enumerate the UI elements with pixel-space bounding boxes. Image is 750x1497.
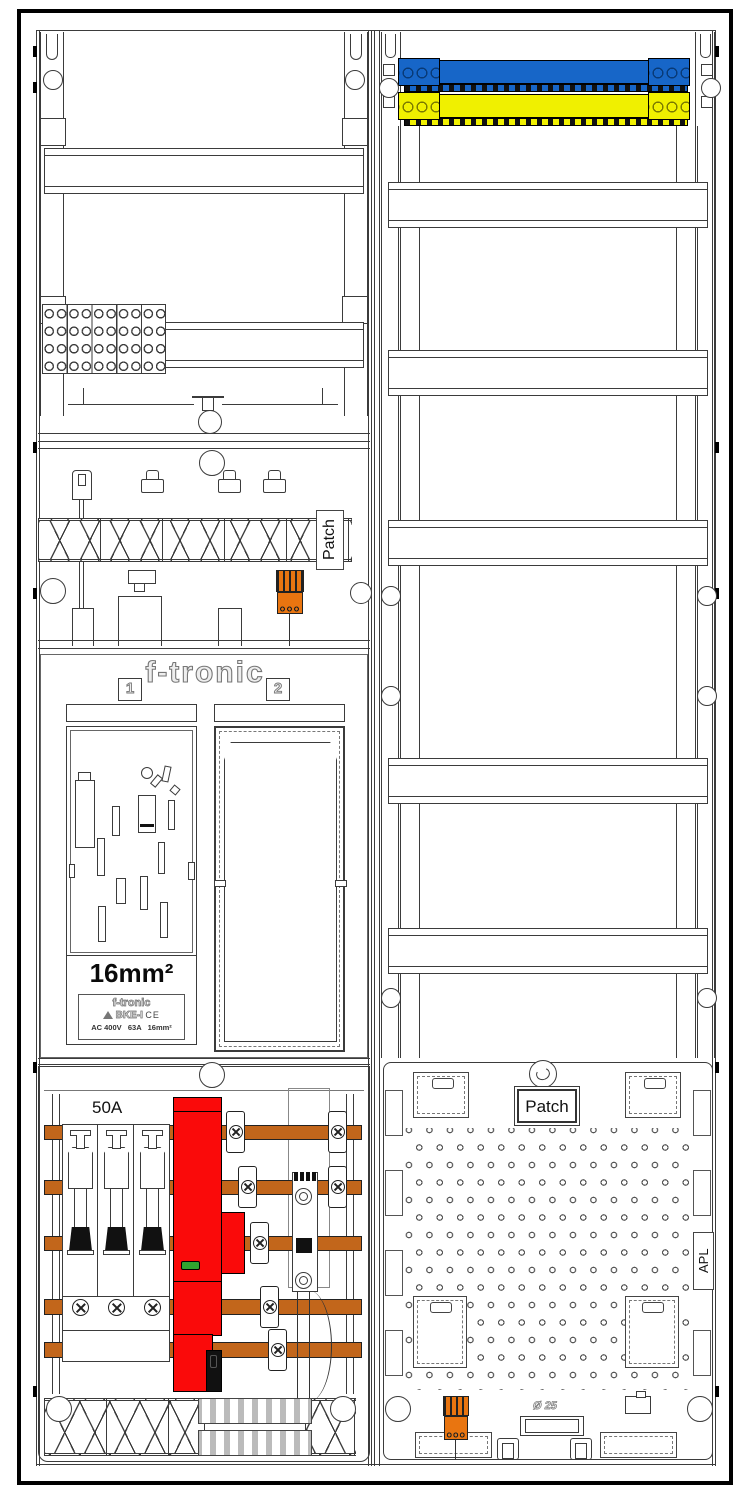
mm-bottom-line2 <box>38 648 370 649</box>
terminal-strip-row2 <box>198 1430 312 1456</box>
mounting-ring <box>701 78 721 98</box>
panel-hinge-left <box>385 1170 403 1216</box>
panel-connector-head <box>443 1396 469 1416</box>
bke-left-clip <box>78 772 91 781</box>
tl-step-l <box>68 388 84 405</box>
din-rail-right-4 <box>388 758 708 804</box>
mm-module-box <box>118 596 162 646</box>
r-vstrip-left <box>398 804 420 928</box>
pe-bus-end-left <box>398 92 440 120</box>
wall-tab-right <box>715 1062 719 1073</box>
wall-tab-right <box>715 442 719 453</box>
panel-hinge-right <box>693 1330 711 1376</box>
din-rail-right-2 <box>388 350 708 396</box>
fuse-stem <box>74 1188 87 1228</box>
din-rail-left-2 <box>160 322 364 368</box>
mounting-ring <box>381 586 401 606</box>
screwdriver-icon <box>141 767 153 779</box>
pe-bus-comb <box>404 118 688 126</box>
panel-u-bracket <box>497 1438 519 1460</box>
r-vstrip-left <box>398 126 420 182</box>
patch-label-left: Patch <box>317 511 343 569</box>
sls-green-indicator <box>181 1261 200 1270</box>
sls-rating-text: 50A <box>92 1098 138 1118</box>
mm-flag-box <box>128 570 156 584</box>
sls-slot-handle <box>210 1355 217 1368</box>
ce-mark: CE <box>145 1010 160 1020</box>
fuse-grip-base <box>139 1250 166 1255</box>
bottom-edge <box>36 1464 716 1465</box>
mounting-ring <box>46 1396 72 1422</box>
fuse-grip-base <box>67 1250 94 1255</box>
r-vstrip-right <box>676 396 698 520</box>
pe-busbar-yellow <box>398 94 690 118</box>
bke-slot <box>98 906 106 942</box>
field2-number-box: 2 <box>266 678 290 701</box>
patch-label-right-box: Patch <box>514 1086 580 1126</box>
r-clamp <box>701 64 713 76</box>
neutral-busbar-blue <box>398 60 690 84</box>
mm-connector-head <box>276 570 304 592</box>
din-rail-left-1 <box>44 148 364 194</box>
neutral-bus-end-left <box>398 58 440 86</box>
bke-slot <box>112 806 120 836</box>
clamp-screw-icon <box>263 1300 277 1314</box>
sls-switch-body <box>173 1111 222 1283</box>
wall-tab-right <box>715 1386 719 1397</box>
tl-hanger-stem <box>202 397 214 411</box>
fuse-grip-handle <box>105 1227 128 1251</box>
bke-slot <box>116 878 126 904</box>
tl-left-foot <box>40 118 66 146</box>
field1-number-box: 1 <box>118 678 142 701</box>
mounting-ring <box>379 78 399 98</box>
fuse-head-neck <box>76 1135 85 1149</box>
mm-connector-wire <box>289 614 290 646</box>
meter-field2-frame <box>214 726 345 1052</box>
neutral-bus-comb <box>404 84 688 92</box>
field2-tab-left <box>214 880 226 887</box>
mounting-ring <box>350 582 372 604</box>
cross-section-text: 16mm² <box>70 958 193 989</box>
breaker-top-cap <box>294 1172 316 1181</box>
clamp-screw-icon <box>229 1125 243 1139</box>
bke-slot-band <box>140 824 154 827</box>
tl-step-line-l <box>84 404 194 405</box>
field2-number: 2 <box>274 680 282 697</box>
mounting-ring <box>385 1396 411 1422</box>
bke-slot <box>138 795 156 833</box>
clamp-screw-icon <box>331 1125 345 1139</box>
wall-tab-left <box>33 46 37 57</box>
fuse-grip-base <box>103 1250 130 1255</box>
terminal-strip-row1 <box>198 1398 312 1424</box>
tl-right-foot <box>342 118 368 146</box>
fuse-hline-1 <box>63 1296 169 1297</box>
mm-flag-stub <box>134 583 145 592</box>
mounting-ring <box>381 686 401 706</box>
mounting-ring <box>199 1062 225 1088</box>
field2-header-bar <box>214 704 345 722</box>
tl-bottom-line1 <box>38 433 370 434</box>
r-vstrip-right <box>676 228 698 350</box>
cable-duct-mm <box>38 518 352 562</box>
panel-cutout-top-right <box>625 1072 681 1118</box>
bke-slot <box>168 800 175 830</box>
apl-label: APL <box>694 1233 713 1289</box>
r-vstrip-left <box>398 396 420 520</box>
r-clamp <box>383 64 395 76</box>
mounting-ring <box>199 450 225 476</box>
wall-tab-right <box>715 46 719 57</box>
clamp-screw-icon <box>253 1236 267 1250</box>
panel-cutout-top-left <box>413 1072 469 1118</box>
tl-right-slot <box>350 34 362 60</box>
mm-bottom-line1 <box>38 640 370 641</box>
clamp-screw-icon <box>271 1343 285 1357</box>
bke-label-brand: f-tronic <box>79 997 184 1009</box>
panel-bottom-frame-right <box>600 1432 677 1458</box>
fuse-stem <box>110 1188 123 1228</box>
r-left-slot <box>385 34 396 58</box>
fuse-screw-icon <box>144 1299 161 1316</box>
phone-jack-pin <box>78 474 86 486</box>
fuse-body <box>140 1147 165 1189</box>
terminal-circle-block <box>42 304 166 374</box>
top-edge <box>36 30 716 31</box>
conduit-label: Ø 25 <box>519 1400 571 1412</box>
r-right-slot <box>700 34 711 58</box>
keystone-jack-base <box>263 479 286 493</box>
bke-rating-label: f-tronic BKE-I CE AC 400V 63A 16mm² <box>78 994 185 1040</box>
breaker-screw-inner <box>299 1192 308 1201</box>
breaker-screw-inner <box>299 1276 308 1285</box>
fuse-head-neck <box>148 1135 157 1149</box>
bke-slot <box>188 862 195 880</box>
brand-text: f-tronic <box>120 656 290 690</box>
breaker-handle <box>296 1238 312 1253</box>
fuse-hline-2 <box>63 1330 169 1331</box>
wall-tab-left <box>33 588 37 599</box>
r-vstrip-left <box>398 974 420 1058</box>
panel-hinge-left <box>385 1330 403 1376</box>
clamp-screw-icon <box>241 1180 255 1194</box>
neutral-bus-end-right <box>648 58 690 86</box>
r-vstrip-left <box>398 566 420 758</box>
din-rail-right-3 <box>388 520 708 566</box>
bke-specs: AC 400V 63A 16mm² <box>79 1023 184 1032</box>
mounting-ring <box>697 988 717 1008</box>
fuse-grip-handle <box>69 1227 92 1251</box>
panel-connector-wire <box>455 1440 456 1460</box>
wall-tab-left <box>33 1386 37 1397</box>
mounting-ring <box>687 1396 713 1422</box>
tl-left-slot <box>46 34 58 60</box>
dist-top-line1 <box>38 1058 370 1059</box>
mounting-ring <box>330 1396 356 1422</box>
panel-hinge-right <box>693 1170 711 1216</box>
meter-cabinet-drawing: Patch f-tronic 1 2 16mm² f-tronic <box>0 0 750 1497</box>
bke-model: BKE-I <box>116 1010 143 1021</box>
fuse-head-neck <box>112 1135 121 1149</box>
field1-number: 1 <box>126 680 134 697</box>
field2-tab-right <box>335 880 347 887</box>
r-vstrip-right <box>676 804 698 928</box>
bke-slot <box>160 902 168 938</box>
mounting-ring <box>345 70 365 90</box>
mounting-ring <box>40 578 66 604</box>
wall-tab-left <box>33 1062 37 1073</box>
panel-cutout-bottom-right <box>625 1296 679 1368</box>
mm-connector-pins <box>279 606 301 612</box>
panel-cutout-bottom-left <box>413 1296 467 1368</box>
panel-connector-pins <box>446 1432 466 1438</box>
wall-tab-left <box>33 82 37 93</box>
r-vstrip-right <box>676 566 698 758</box>
fuse-screw-icon <box>108 1299 125 1316</box>
patch-label-right: Patch <box>525 1097 568 1116</box>
fuse-screw-icon <box>72 1299 89 1316</box>
field1-header-bar <box>66 704 197 722</box>
ftronic-logo-icon <box>103 1011 113 1019</box>
tl-bottom-line2 <box>38 441 370 442</box>
fuse-body <box>68 1147 93 1189</box>
din-rail-right-1 <box>388 182 708 228</box>
sls-switch-lower <box>173 1281 222 1336</box>
r-vstrip-left <box>398 228 420 350</box>
keystone-jack-base <box>141 479 164 493</box>
panel-hinge-left <box>385 1090 403 1136</box>
tl-step-r <box>322 388 338 405</box>
fuse-body <box>104 1147 129 1189</box>
bke-left-bar <box>75 780 95 848</box>
keystone-jack-base <box>218 479 241 493</box>
sls-switch-extension <box>221 1212 245 1274</box>
mounting-ring <box>43 70 63 90</box>
mounting-ring <box>697 686 717 706</box>
clamp-screw-icon <box>331 1180 345 1194</box>
column-divider <box>374 30 380 1466</box>
mounting-ring <box>381 988 401 1008</box>
bke-slot <box>140 876 148 910</box>
panel-u-bracket <box>570 1438 592 1460</box>
conduit-bracket <box>520 1416 584 1436</box>
mounting-ring <box>697 586 717 606</box>
tl-right-foot2 <box>342 296 368 324</box>
r-vstrip-right <box>676 974 698 1058</box>
din-rail-right-5 <box>388 928 708 974</box>
bke-slot <box>69 864 75 878</box>
panel-hinge-right <box>693 1090 711 1136</box>
bke-slot <box>158 842 165 874</box>
bke-slot <box>97 838 105 876</box>
pe-bus-end-right <box>648 92 690 120</box>
tl-step-line-r <box>222 404 322 405</box>
wall-tab-left <box>33 442 37 453</box>
breaker-wire-l <box>297 1292 298 1398</box>
patch-label-left-box: Patch <box>316 510 344 570</box>
fuse-grip-handle <box>141 1227 164 1251</box>
r-vstrip-right <box>676 126 698 182</box>
field2-opening <box>224 742 337 1042</box>
apl-label-box: APL <box>693 1232 714 1290</box>
panel-step-bracket <box>625 1396 651 1414</box>
mounting-ring <box>198 410 222 434</box>
fuse-stem <box>146 1188 159 1228</box>
panel-hinge-left <box>385 1250 403 1296</box>
mm-top-line <box>38 448 370 449</box>
